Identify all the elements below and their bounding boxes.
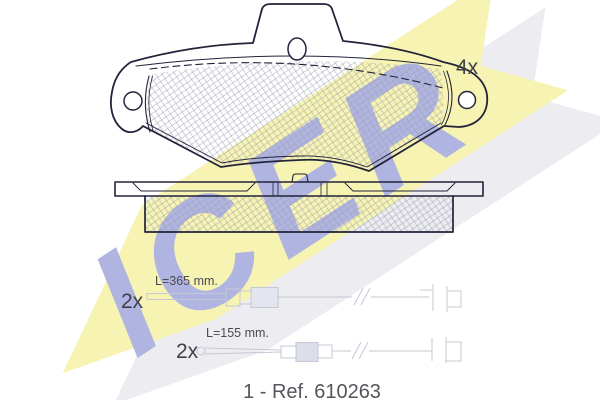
- diagram-canvas: ICER 4x: [0, 0, 600, 400]
- sensor-slot-hole: [288, 38, 306, 60]
- left-mounting-hole: [124, 92, 142, 110]
- reference-caption: 1 - Ref. 610263: [243, 381, 381, 400]
- sensor365-end-terminal-lines: [420, 284, 447, 312]
- sensor365-quantity-label: 2x: [121, 290, 144, 313]
- sensor365-end-terminal: [447, 291, 461, 307]
- pad-front-view: [115, 174, 483, 232]
- sensor155-connector-c: [318, 345, 332, 358]
- sensor155-end-terminal: [446, 342, 461, 361]
- pad-quantity-label: 4x: [456, 56, 479, 79]
- sensor365-length-label: L=365 mm.: [155, 274, 218, 288]
- sensor155-connector-a: [281, 346, 296, 358]
- sensor155-length-label: L=155 mm.: [206, 326, 269, 340]
- brake-pad-diagram: ICER 4x: [0, 0, 600, 400]
- sensor155-break-marks: [352, 342, 368, 359]
- sensor365-connector-c: [251, 288, 278, 308]
- right-mounting-hole: [459, 92, 476, 109]
- sensor155-connector-b: [296, 343, 318, 362]
- sensor155-end-terminal-lines: [432, 337, 446, 363]
- sensor155-quantity-label: 2x: [176, 340, 199, 363]
- front-friction-hatch: [145, 196, 453, 232]
